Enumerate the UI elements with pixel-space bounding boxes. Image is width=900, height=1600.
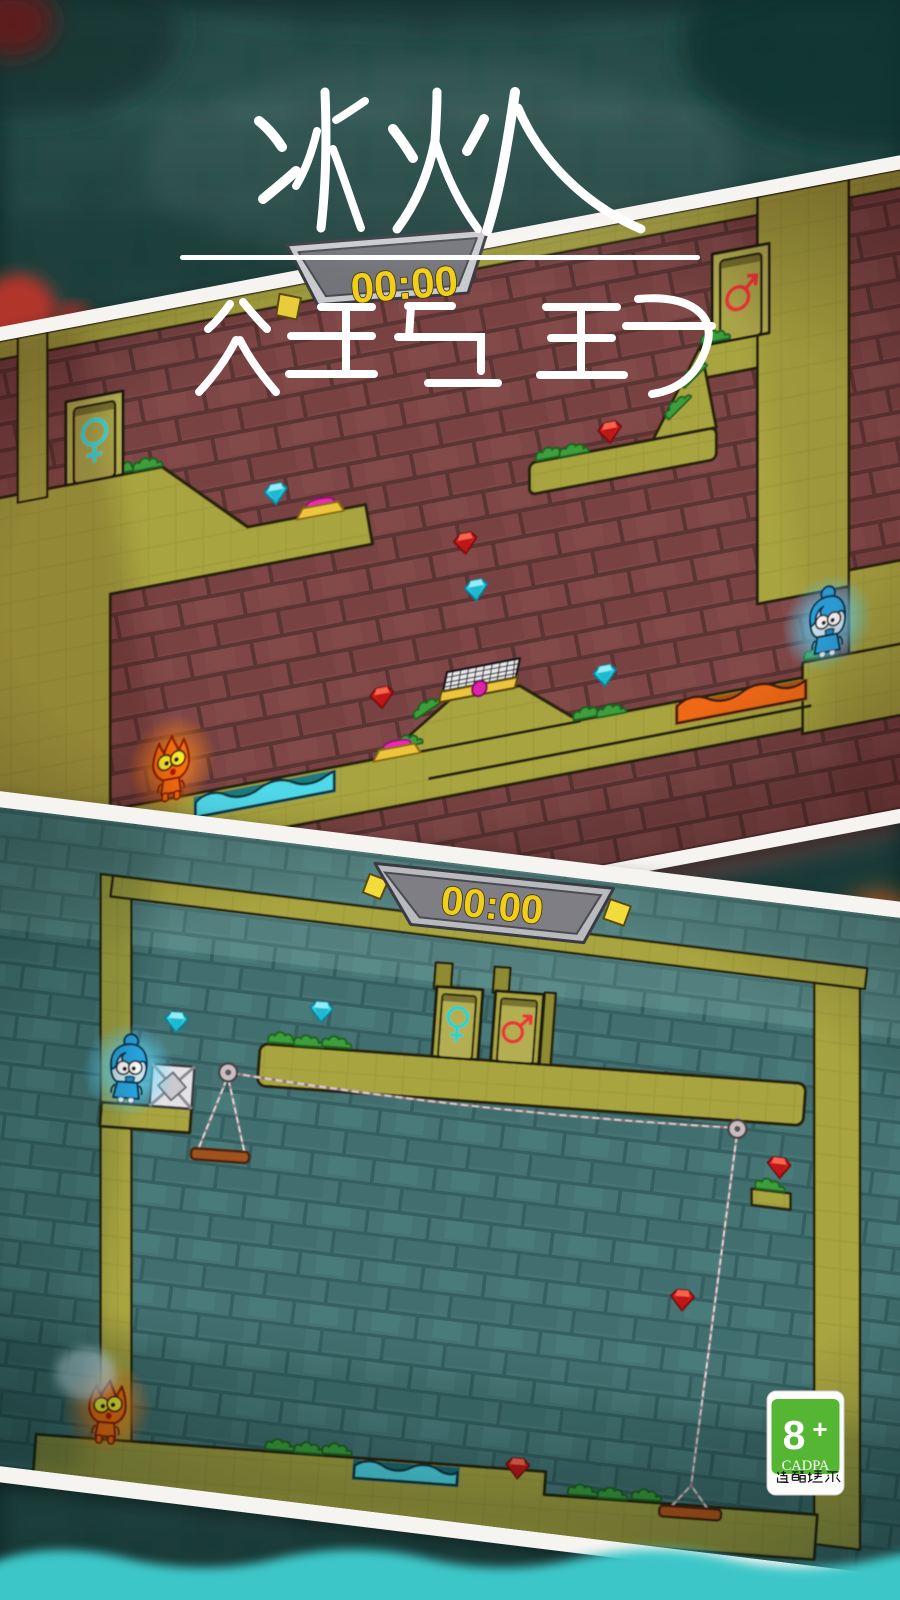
svg-text:CADPA: CADPA (782, 1458, 830, 1474)
svg-text:8: 8 (783, 1412, 806, 1458)
svg-text:+: + (812, 1414, 827, 1444)
